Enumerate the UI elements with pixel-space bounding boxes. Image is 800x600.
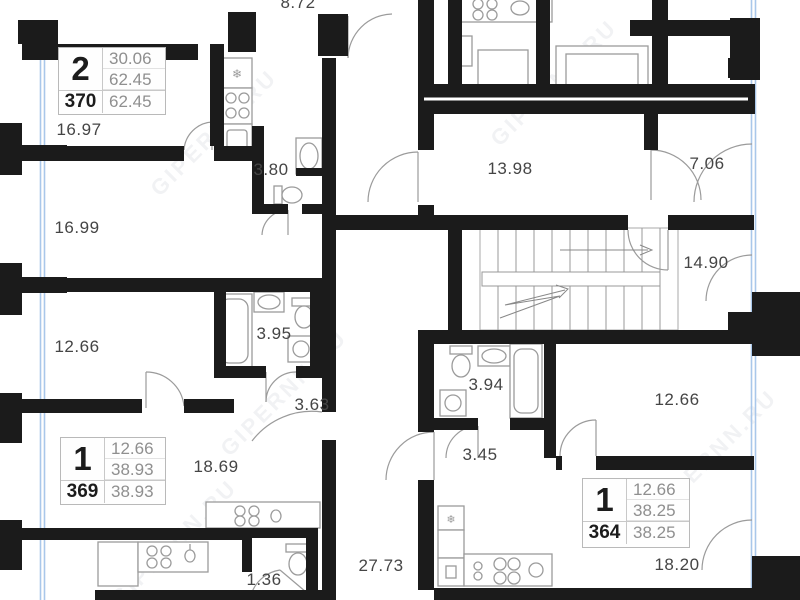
toilet-icon [450,346,472,377]
room-area-label: 8.72 [280,0,315,13]
fridge-icon: ❄ [438,506,464,530]
room-area-label: 14.90 [683,253,728,273]
apartment-rooms-count: 1 [583,479,627,521]
room-area-label: 16.99 [54,218,99,238]
bath-sink-icon [254,292,284,312]
room-area-label: 3.63 [294,395,329,415]
room-area-label: 18.69 [193,457,238,477]
apartment-number: 370 [59,90,103,113]
room-area-label: 3.95 [256,324,291,344]
apartment-info-box-364: 1 12.66 38.25 364 38.25 [582,478,690,548]
bath-sink-icon [478,346,510,366]
room-area-label: 16.97 [56,120,101,140]
stairs [480,228,678,330]
room-area-label: 3.94 [468,375,503,395]
apartment-living-area: 30.06 [103,48,165,69]
washing-machine-icon [440,390,466,416]
apartment-area: 38.25 [627,500,689,521]
kitchen-sink-icon [438,530,464,586]
room-area-label: 3.80 [253,160,288,180]
room-area-label: 12.66 [654,390,699,410]
apartment-total-area: 62.45 [103,90,165,113]
room-area-label: 27.73 [358,556,403,576]
room-area-label: 3.45 [462,445,497,465]
stove-icon [464,554,552,586]
stair-landing [482,272,660,286]
apartment-total-area: 38.25 [627,521,689,544]
room-area-label: 1.36 [246,570,281,590]
apartment-living-area: 12.66 [105,438,165,459]
svg-text:❄: ❄ [446,514,455,526]
stair-treads-lower [498,286,660,330]
toilet-icon [274,186,302,204]
apartment-area: 38.93 [105,459,165,480]
stove-icon [222,88,252,124]
kitchen-counter [98,542,208,586]
apartment-rooms-count: 2 [59,48,103,90]
room-area-label: 7.06 [689,154,724,174]
apartment-rooms-count: 1 [61,438,105,480]
fridge-icon: ❄ [222,58,252,88]
apartment-info-box-369: 1 12.66 38.93 369 38.93 [60,437,166,505]
floor-plan: GIPERNN.RU GIPERNN.RU GIPERNN.RU GIPERNN… [0,0,800,600]
room-area-label: 13.98 [487,159,532,179]
apartment-number: 369 [61,480,105,503]
apartment-area: 62.45 [103,69,165,90]
stair-direction-arrows [500,245,652,318]
apartment-number: 364 [583,521,627,544]
kitchen-counter [206,502,320,528]
room-area-label: 18.20 [654,555,699,575]
svg-text:❄: ❄ [232,67,242,81]
apartment-info-box-370: 2 30.06 62.45 370 62.45 [58,47,166,115]
apartment-living-area: 12.66 [627,479,689,500]
bathtub-icon [510,344,542,418]
apartment-total-area: 38.93 [105,480,165,503]
room-area-label: 12.66 [54,337,99,357]
